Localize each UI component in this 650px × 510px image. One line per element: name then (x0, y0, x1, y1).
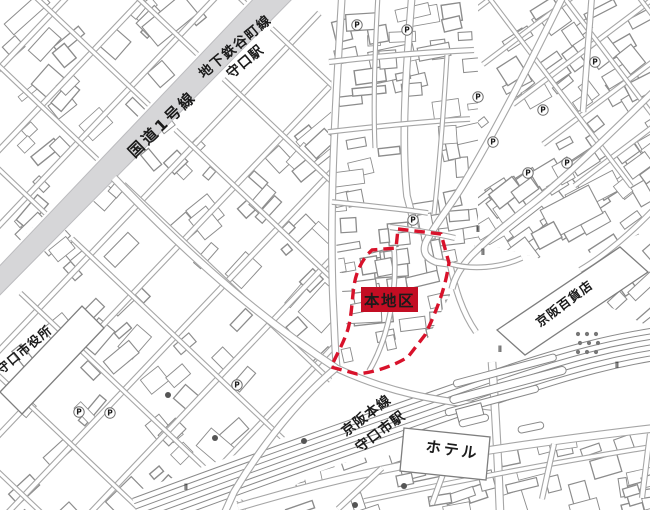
building-mark-icon: Ⅱ (615, 361, 619, 371)
building-mark-icon: Ⅱ (476, 225, 480, 235)
building-mark-icon: Ⅱ (498, 345, 502, 355)
building-outline (458, 32, 472, 41)
svg-text:P: P (525, 169, 531, 178)
parking-icon: P (74, 407, 84, 417)
svg-text:P: P (540, 106, 546, 115)
svg-text:P: P (107, 409, 113, 418)
svg-text:P: P (490, 138, 496, 147)
building-outline (449, 210, 470, 222)
parking-icon: P (232, 380, 242, 390)
svg-text:P: P (404, 26, 410, 35)
map-canvas: PPPPPPPPPPPPⅡⅡⅡⅡⅡ 本地区 国道1号線 地下鉄谷町線 守口駅 守… (0, 0, 650, 510)
building-mark-icon: Ⅱ (184, 483, 188, 493)
tree-dot-icon (578, 341, 582, 345)
poi-dot-icon (301, 438, 307, 444)
parking-icon: P (105, 408, 115, 418)
tree-dot-icon (585, 332, 589, 336)
parking-icon: P (488, 137, 498, 147)
building-mark-icon: Ⅱ (481, 248, 485, 258)
svg-text:P: P (564, 159, 570, 168)
parking-icon: P (562, 158, 572, 168)
parking-icon: P (523, 168, 533, 178)
tree-dot-icon (594, 332, 598, 336)
poi-dot-icon (212, 435, 218, 441)
parking-icon: P (473, 92, 483, 102)
building-outline (379, 229, 390, 243)
tree-dot-icon (596, 341, 600, 345)
svg-text:P: P (592, 58, 598, 67)
parking-icon: P (402, 25, 412, 35)
svg-text:P: P (354, 21, 360, 30)
poi-dot-icon (352, 502, 358, 508)
tree-dot-icon (585, 350, 589, 354)
district-label-badge: 本地区 (361, 287, 418, 312)
district-map-figure: PPPPPPPPPPPPⅡⅡⅡⅡⅡ 本地区 国道1号線 地下鉄谷町線 守口駅 守… (0, 0, 650, 510)
district-badge-label: 本地区 (364, 291, 415, 310)
building-outline (334, 169, 365, 187)
parking-icon: P (538, 105, 548, 115)
tree-dot-icon (587, 341, 591, 345)
parking-icon: P (590, 57, 600, 67)
svg-text:P: P (234, 381, 240, 390)
building-outline (340, 218, 356, 233)
parking-icon: P (408, 215, 418, 225)
building-outline (399, 316, 426, 331)
tree-dot-icon (576, 332, 580, 336)
parking-icon: P (352, 20, 362, 30)
poi-dot-icon (165, 392, 171, 398)
building-outline (375, 258, 394, 277)
svg-text:P: P (410, 216, 416, 225)
tree-dot-icon (594, 350, 598, 354)
svg-text:P: P (475, 93, 481, 102)
poi-dot-icon (401, 483, 407, 489)
tree-dot-icon (576, 350, 580, 354)
svg-text:P: P (76, 408, 82, 417)
building-outline (378, 146, 400, 156)
